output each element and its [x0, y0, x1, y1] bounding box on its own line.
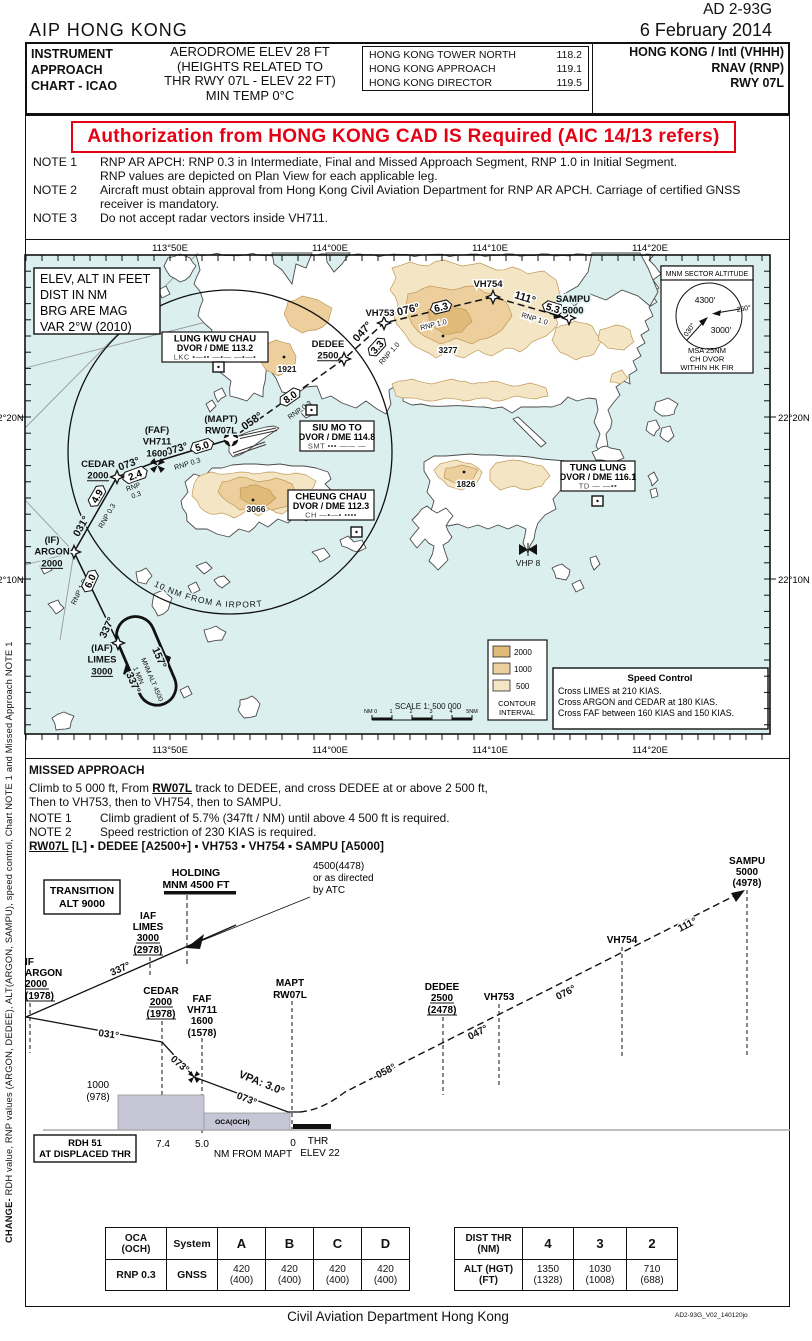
svg-text:IF: IF [25, 957, 34, 968]
svg-text:1000: 1000 [514, 665, 532, 674]
svg-text:RDH 51: RDH 51 [68, 1138, 103, 1149]
svg-text:ARGON: ARGON [25, 968, 62, 979]
svg-text:073°: 073° [235, 1091, 258, 1109]
svg-text:VH753: VH753 [484, 992, 515, 1003]
svg-text:1600: 1600 [191, 1016, 214, 1027]
svg-text:-058°: -058° [371, 1062, 397, 1083]
svg-text:(1578): (1578) [188, 1028, 217, 1039]
svg-text:BRG ARE MAG: BRG ARE MAG [40, 304, 128, 318]
svg-text:VAR 2°W (2010): VAR 2°W (2010) [40, 320, 132, 334]
svg-text:VH754: VH754 [473, 279, 503, 290]
svg-text:OCA(OCH): OCA(OCH) [215, 1119, 250, 1126]
svg-text:DVOR / DME 114.8: DVOR / DME 114.8 [299, 432, 375, 442]
svg-text:AT DISPLACED THR: AT DISPLACED THR [39, 1149, 131, 1160]
svg-text:1: 1 [389, 709, 392, 715]
svg-text:2000: 2000 [150, 997, 173, 1008]
svg-text:2500: 2500 [317, 351, 338, 362]
svg-text:LIMES: LIMES [133, 922, 164, 933]
svg-text:111°: 111° [676, 916, 698, 935]
svg-text:3000: 3000 [137, 933, 160, 944]
svg-text:or as directed: or as directed [313, 873, 374, 884]
svg-text:(IF): (IF) [45, 535, 60, 546]
svg-text:VH711: VH711 [187, 1005, 217, 1016]
svg-text:4300': 4300' [695, 295, 716, 305]
svg-text:Cross LIMES at 210 KIAS.: Cross LIMES at 210 KIAS. [558, 686, 662, 696]
svg-text:073°: 073° [168, 1054, 191, 1076]
svg-text:SAMPU: SAMPU [556, 294, 590, 305]
svg-text:(IAF): (IAF) [91, 643, 113, 654]
svg-text:(4978): (4978) [733, 878, 762, 889]
svg-text:22°20N: 22°20N [778, 413, 810, 424]
svg-text:3066: 3066 [247, 504, 266, 514]
svg-text:VH711: VH711 [143, 437, 172, 448]
svg-text:114°20E: 114°20E [632, 745, 668, 756]
svg-text:VH754: VH754 [607, 935, 638, 946]
svg-text:NM 0: NM 0 [364, 709, 377, 715]
svg-text:INTERVAL: INTERVAL [499, 708, 535, 717]
svg-text:HOLDING: HOLDING [172, 867, 220, 879]
svg-text:076°: 076° [554, 983, 577, 1002]
svg-text:VH753: VH753 [365, 308, 394, 319]
svg-text:3000: 3000 [91, 666, 112, 677]
svg-text:MAPT: MAPT [276, 978, 304, 989]
svg-text:3: 3 [429, 709, 432, 715]
svg-text:CEDAR: CEDAR [81, 459, 115, 470]
svg-text:ELEV 22: ELEV 22 [300, 1148, 340, 1159]
svg-text:DVOR / DME 112.3: DVOR / DME 112.3 [293, 501, 369, 511]
svg-text:(FAF): (FAF) [145, 425, 169, 436]
svg-text:DEDEE: DEDEE [425, 982, 460, 993]
svg-text:031°: 031° [98, 1028, 120, 1042]
svg-text:LKC •—•• —•— —•—•: LKC •—•• —•— —•—• [174, 353, 257, 362]
svg-text:(1978): (1978) [147, 1009, 176, 1020]
svg-text:Cross FAF between 160 KIAS and: Cross FAF between 160 KIAS and 150 KIAS. [558, 708, 734, 718]
svg-text:5NM: 5NM [466, 709, 478, 715]
svg-text:114°10E: 114°10E [472, 243, 508, 254]
svg-text:114°00E: 114°00E [312, 243, 348, 254]
svg-text:500: 500 [516, 682, 530, 691]
svg-text:CH —•—• ••••: CH —•—• •••• [305, 511, 357, 520]
svg-text:2000: 2000 [87, 471, 108, 482]
svg-text:(1978): (1978) [25, 991, 54, 1002]
svg-text:0: 0 [290, 1138, 296, 1149]
svg-text:2000: 2000 [514, 648, 532, 657]
svg-text:DVOR / DME 116.1: DVOR / DME 116.1 [560, 472, 636, 482]
svg-text:MNM 4500 FT: MNM 4500 FT [162, 879, 230, 891]
svg-text:1000: 1000 [87, 1080, 110, 1091]
svg-text:by ATC: by ATC [313, 885, 345, 896]
svg-text:2: 2 [409, 709, 412, 715]
svg-text:114°10E: 114°10E [472, 745, 508, 756]
svg-text:DIST IN NM: DIST IN NM [40, 288, 107, 302]
svg-text:1600: 1600 [146, 448, 167, 459]
svg-text:047°: 047° [466, 1023, 489, 1042]
svg-text:3277: 3277 [439, 345, 458, 355]
svg-text:THR: THR [308, 1136, 329, 1147]
svg-text:1921: 1921 [278, 364, 297, 374]
svg-text:Cross ARGON and CEDAR at 180 K: Cross ARGON and CEDAR at 180 KIAS. [558, 697, 717, 707]
svg-text:(978): (978) [86, 1092, 109, 1103]
svg-text:3000': 3000' [711, 325, 732, 335]
svg-text:2500: 2500 [431, 993, 454, 1004]
svg-text:ELEV, ALT IN FEET: ELEV, ALT IN FEET [40, 272, 151, 286]
svg-text:SMT ••• —— —: SMT ••• —— — [308, 442, 366, 451]
svg-text:113°50E: 113°50E [152, 243, 188, 254]
svg-text:FAF: FAF [193, 994, 212, 1005]
svg-text:TRANSITION: TRANSITION [50, 885, 114, 897]
svg-text:LIMES: LIMES [87, 655, 116, 666]
svg-text:NM FROM MAPT: NM FROM MAPT [214, 1149, 292, 1160]
svg-text:RW07L: RW07L [273, 990, 307, 1001]
svg-text:WITHIN HK FIR: WITHIN HK FIR [680, 363, 734, 372]
svg-text:(2978): (2978) [134, 945, 163, 956]
svg-text:(MAPT): (MAPT) [204, 414, 237, 425]
svg-text:TD — —••: TD — —•• [579, 482, 617, 491]
svg-text:MNM SECTOR ALTITUDE: MNM SECTOR ALTITUDE [666, 271, 749, 278]
svg-text:CONTOUR: CONTOUR [498, 699, 536, 708]
svg-text:22°10N: 22°10N [778, 575, 810, 586]
svg-text:7.4: 7.4 [156, 1139, 170, 1150]
svg-text:4: 4 [449, 709, 452, 715]
svg-text:113°50E: 113°50E [152, 745, 188, 756]
svg-text:Speed Control: Speed Control [628, 673, 693, 684]
svg-text:2000: 2000 [25, 979, 48, 990]
svg-text:114°20E: 114°20E [632, 243, 668, 254]
svg-text:5000: 5000 [736, 867, 759, 878]
svg-text:CEDAR: CEDAR [143, 986, 179, 997]
svg-text:114°00E: 114°00E [312, 745, 348, 756]
svg-text:DVOR / DME 113.2: DVOR / DME 113.2 [177, 343, 253, 353]
svg-text:ARGON: ARGON [34, 547, 70, 558]
svg-text:SAMPU: SAMPU [729, 856, 765, 867]
svg-text:1826: 1826 [457, 479, 476, 489]
svg-text:(2478): (2478) [428, 1005, 457, 1016]
svg-text:4500(4478): 4500(4478) [313, 861, 364, 872]
svg-text:VHP 8: VHP 8 [516, 558, 541, 568]
svg-text:2000: 2000 [41, 558, 62, 569]
svg-text:IAF: IAF [140, 911, 156, 922]
svg-text:5.0: 5.0 [195, 1139, 209, 1150]
svg-text:RW07L: RW07L [205, 426, 237, 437]
svg-text:ALT 9000: ALT 9000 [59, 898, 105, 910]
svg-text:5000: 5000 [562, 306, 583, 317]
svg-text:DEDEE: DEDEE [312, 339, 345, 350]
